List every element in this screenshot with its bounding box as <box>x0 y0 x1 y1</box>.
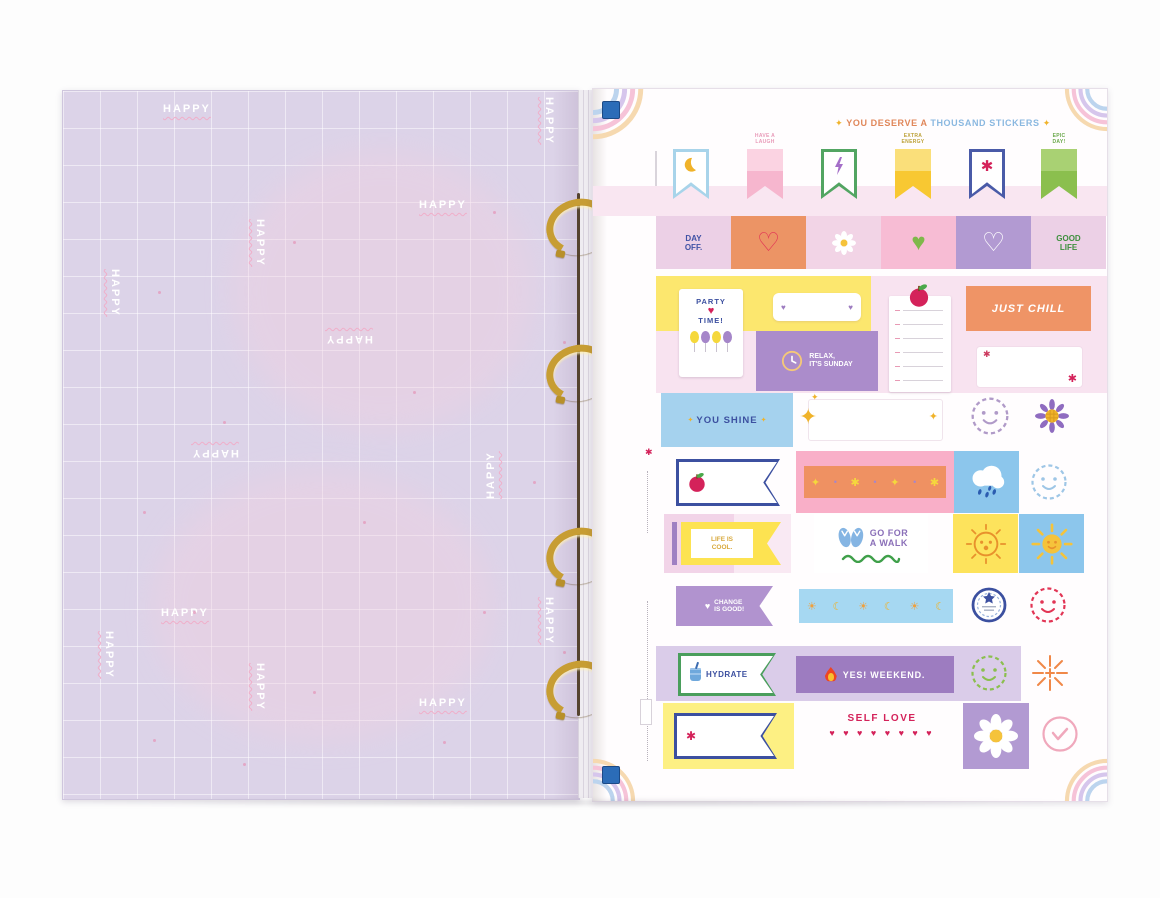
daisy-icon <box>974 714 1018 758</box>
smiley-face-icon <box>1029 462 1069 502</box>
change-is-good-label: CHANGE IS GOOD! <box>714 599 744 614</box>
happy-pattern-word: HAPPY <box>109 269 121 317</box>
sparkle-strip-sticker: ✦ • ✱ • ✦ • ✱ <box>796 451 954 513</box>
happy-pattern-word: HAPPY <box>325 333 373 345</box>
fine-print-chip <box>640 699 652 725</box>
sheet-title-part1: YOU DESERVE A <box>846 118 927 128</box>
heart-outline-icon: ♡ <box>982 227 1005 258</box>
sparkle-icon: ✦ <box>1043 118 1051 128</box>
rainbow-arc-icon <box>593 89 655 151</box>
hydrate-label: HYDRATE <box>706 670 748 679</box>
relax-sunday-label: RELAX, IT'S SUNDAY <box>809 353 852 369</box>
happy-pattern-word: HAPPY <box>254 219 266 267</box>
go-for-a-walk-label: GO FOR A WALK <box>870 528 909 548</box>
moon-icon: ☾ <box>935 600 945 613</box>
go-for-a-walk-sticker: GO FOR A WALK <box>814 514 928 573</box>
sparkle-icon: ✦ <box>811 392 819 403</box>
flower-label-sticker: ✱ ✱ <box>976 346 1083 388</box>
fine-print-line <box>647 471 648 533</box>
sun-icon <box>1031 523 1073 565</box>
flower-asterisk-icon: ✱ <box>1068 372 1077 385</box>
lightning-icon <box>833 157 845 175</box>
day-off-sticker: DAY OFF. <box>656 216 731 269</box>
sparkle-icon: ✦ <box>687 416 693 424</box>
flower-asterisk-icon: ✱ <box>645 447 653 458</box>
page-shadow <box>70 799 1100 806</box>
life-is-cool-sticker: LIFE IS COOL. <box>664 514 791 573</box>
drink-cup-icon <box>690 668 701 681</box>
self-love-sticker: SELF LOVE ♥ ♥ ♥ ♥ ♥ ♥ ♥ ♥ <box>807 713 957 757</box>
apple-icon <box>686 471 708 493</box>
you-shine-sticker: ✦ YOU SHINE ✦ <box>661 393 793 447</box>
sheet-title-part2: THOUSAND STICKERS <box>930 118 1039 128</box>
heart-outline-sticker: ♡ <box>731 216 806 269</box>
party-time-sticker: PARTY ♥ TIME! <box>679 289 743 377</box>
margin-tick <box>655 151 657 191</box>
fire-icon <box>825 667 837 682</box>
moon-icon: ☾ <box>833 600 843 613</box>
flower-pennant-sticker: ✱ <box>674 713 777 759</box>
squiggle-icon <box>841 553 901 563</box>
sparkle-label-sticker: ✦ ✦ ✦ <box>808 399 943 441</box>
daisy-icon <box>832 231 856 255</box>
sun-sticker <box>1019 514 1084 573</box>
flower-asterisk-icon: ✱ <box>851 476 860 489</box>
left-page: HAPPY HAPPY HAPPY HAPPY HAPPY HAPPY HAPP… <box>62 90 580 800</box>
happy-pattern-word: HAPPY <box>485 451 497 499</box>
you-shine-label: YOU SHINE <box>696 415 757 426</box>
banner-label: HAVE A LAUGH <box>737 133 793 145</box>
just-chill-sticker: JUST CHILL <box>966 286 1091 331</box>
dot-icon: • <box>873 477 876 487</box>
happy-pattern-word: HAPPY <box>163 103 211 115</box>
sparkle-icon: ✦ <box>761 416 767 424</box>
fine-print-line <box>647 601 648 761</box>
heart-icon: ♥ <box>848 303 853 312</box>
todo-list-sticker <box>889 296 951 392</box>
sun-icon: ☀ <box>858 600 868 613</box>
hearts-row: ♥ ♥ ♥ ♥ ♥ ♥ ♥ ♥ <box>807 728 957 738</box>
sheet-title: ✦ YOU DESERVE A THOUSAND STICKERS ✦ <box>803 118 1083 132</box>
life-is-cool-label: LIFE IS COOL. <box>711 536 733 551</box>
happy-pattern-word: HAPPY <box>103 631 115 679</box>
good-life-label: GOOD LIFE <box>1053 234 1085 252</box>
sun-face-sticker <box>953 514 1018 573</box>
sparkle-icon: ✦ <box>799 404 817 430</box>
heart-icon: ♥ <box>705 601 710 611</box>
flower-asterisk-icon: ✱ <box>969 157 1005 175</box>
purple-burst-icon <box>1035 399 1069 433</box>
rain-cloud-icon <box>965 463 1009 501</box>
sun-icon: ☀ <box>807 600 817 613</box>
sun-face-icon <box>965 523 1007 565</box>
sticker-sheet-page: ✦ YOU DESERVE A THOUSAND STICKERS ✦ HAVE… <box>592 88 1108 802</box>
party-time-label2: TIME! <box>679 316 743 325</box>
flower-asterisk-icon: ✱ <box>983 349 991 360</box>
happy-pattern-word: HAPPY <box>254 663 266 711</box>
daisy-square-sticker <box>963 703 1029 769</box>
balloons-icon <box>679 330 743 348</box>
flip-flops-icon <box>834 524 866 551</box>
good-life-sticker: GOOD LIFE <box>1031 216 1106 269</box>
hydrate-sticker: HYDRATE <box>678 653 776 696</box>
self-love-label: SELF LOVE <box>807 713 957 724</box>
smiley-face-icon <box>1028 585 1068 625</box>
happy-pattern-word: HAPPY <box>191 447 239 459</box>
white-heart-sticker: ♡ <box>956 216 1031 269</box>
sparkle-icon: ✦ <box>890 476 899 489</box>
notebook-photo: HAPPY HAPPY HAPPY HAPPY HAPPY HAPPY HAPP… <box>0 0 1160 898</box>
rain-cloud-sticker <box>954 451 1019 513</box>
heart-icon: ♥ <box>911 229 925 257</box>
pink-watermark-blob <box>233 151 533 431</box>
flower-asterisk-icon: ✱ <box>930 476 939 489</box>
relax-sunday-sticker: RELAX, IT'S SUNDAY <box>756 331 878 391</box>
apple-icon <box>906 282 932 308</box>
banner-label: EPIC DAY! <box>1031 133 1087 145</box>
banner-label: EXTRA ENERGY <box>885 133 941 145</box>
sparkle-icon: ✦ <box>835 118 843 128</box>
sparkle-icon: ✦ <box>929 410 938 423</box>
heart-outline-icon: ♡ <box>757 227 780 258</box>
check-circle-icon <box>1040 714 1080 754</box>
clock-icon <box>781 350 803 372</box>
green-heart-sticker: ♥ <box>881 216 956 269</box>
day-off-label: DAY OFF. <box>679 234 709 252</box>
starburst-icon <box>1030 653 1070 693</box>
heart-icon: ♥ <box>679 306 743 316</box>
apple-pennant-sticker <box>676 459 780 506</box>
flower-asterisk-icon: ✱ <box>686 729 696 743</box>
sun-moon-strip-sticker: ☀ ☾ ☀ ☾ ☀ ☾ <box>799 589 953 623</box>
yes-weekend-label: YES! WEEKEND. <box>843 670 925 680</box>
change-is-good-sticker: ♥ CHANGE IS GOOD! <box>676 586 773 626</box>
rainbow-arc-icon <box>1055 749 1107 801</box>
heart-icon: ♥ <box>781 303 786 312</box>
hearts-label-sticker: ♥ ♥ <box>773 293 861 321</box>
crescent-moon-icon <box>681 155 701 175</box>
happy-pattern-word: HAPPY <box>161 607 209 619</box>
yes-weekend-sticker: YES! WEEKEND. <box>796 656 954 693</box>
binder-spine <box>577 193 580 716</box>
blue-square-sticker <box>602 766 620 784</box>
daisy-sticker <box>806 216 881 269</box>
happy-pattern-word: HAPPY <box>419 199 467 211</box>
smiley-face-icon <box>969 653 1009 693</box>
blue-square-sticker <box>602 101 620 119</box>
sun-icon: ☀ <box>910 600 920 613</box>
award-badge-icon <box>969 585 1009 625</box>
smiley-face-icon <box>969 395 1011 437</box>
sparkle-icon: ✦ <box>811 476 820 489</box>
dot-icon: • <box>913 477 916 487</box>
moon-icon: ☾ <box>884 600 894 613</box>
just-chill-label: JUST CHILL <box>992 303 1066 315</box>
happy-pattern-word: HAPPY <box>419 697 467 709</box>
dot-icon: • <box>834 477 837 487</box>
